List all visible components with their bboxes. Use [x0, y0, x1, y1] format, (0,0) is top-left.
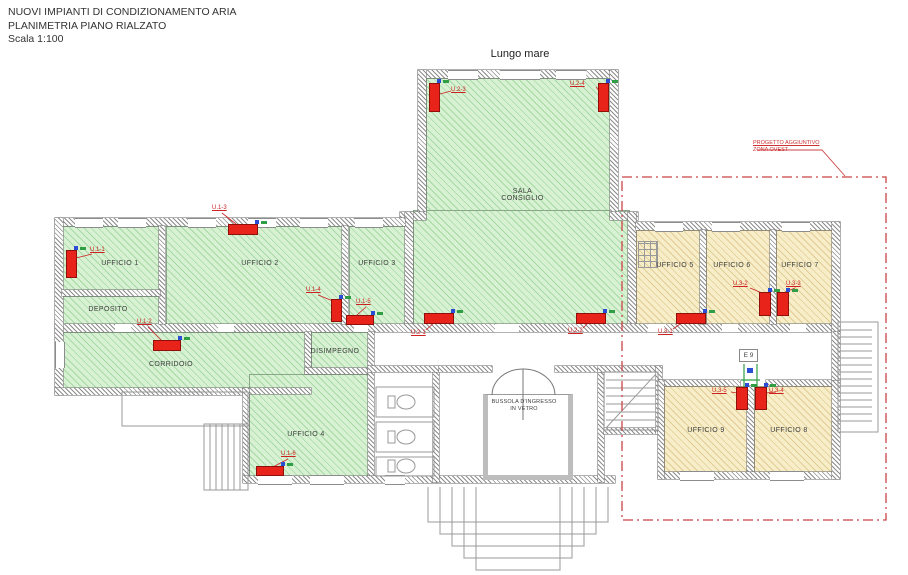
wall-segment [342, 226, 348, 324]
ac-unit-label-u3-2: U.3-2 [733, 281, 748, 287]
window [712, 222, 740, 232]
wall-segment [658, 380, 740, 386]
window [448, 70, 478, 80]
room-label-deposito: DEPOSITO [68, 306, 148, 313]
wall-segment [832, 332, 840, 380]
window [556, 70, 586, 80]
wall-segment [832, 222, 840, 332]
wall-segment [368, 366, 439, 372]
ac-unit-u1-1 [66, 250, 77, 278]
ac-unit-label-u2-3: U.2-3 [451, 87, 466, 93]
wall-segment [439, 366, 492, 372]
piping-node [747, 368, 753, 373]
ac-unit-label-u3-1: U.3-1 [658, 329, 673, 335]
ac-unit-label-u1-6: U.1-6 [281, 451, 296, 457]
room-label-ufficio-9: UFFICIO 9 [666, 427, 746, 434]
window [258, 475, 292, 485]
wall-segment [418, 70, 426, 218]
window [500, 70, 540, 80]
room-label-sala-consiglio: SALA CONSIGLIO [470, 188, 575, 202]
ac-unit-label-u2-1: U.2-1 [411, 330, 426, 336]
wall-segment [832, 380, 840, 479]
ac-unit-label-u1-3: U.1-3 [212, 205, 227, 211]
ac-unit-label-u1-5: U.1-5 [356, 299, 371, 305]
door-opening [722, 324, 738, 332]
door-opening [790, 324, 806, 332]
wall-segment [598, 372, 604, 482]
zone-note-line-1: PROGETTO AGGIUNTIVO [753, 140, 820, 147]
room-label-ufficio-2: UFFICIO 2 [220, 260, 300, 267]
room-label-ufficio-8: UFFICIO 8 [749, 427, 829, 434]
window [75, 218, 103, 228]
wall-segment [55, 388, 249, 395]
ac-unit-u3-3 [777, 292, 789, 316]
ac-unit-u1-3 [228, 224, 258, 235]
door-opening [354, 324, 368, 332]
ac-unit-label-u3-3: U.3-3 [786, 281, 801, 287]
ac-unit-label-u1-2: U.1-2 [137, 319, 152, 325]
room-ufficio-3 [349, 226, 407, 326]
wc-stalls [376, 387, 434, 476]
wall-segment [405, 212, 413, 324]
ac-unit-label-u3-5: U.3-5 [712, 388, 727, 394]
room-ufficio-2 [166, 226, 344, 326]
wall-segment [159, 226, 165, 324]
wall-segment [766, 380, 840, 386]
room-label-ufficio-1: UFFICIO 1 [80, 260, 160, 267]
door-opening [218, 324, 234, 332]
title-line-1: NUOVI IMPIANTI DI CONDIZIONAMENTO ARIA [8, 6, 237, 20]
ac-unit-u3-4 [755, 387, 767, 410]
seafront-label: Lungo mare [460, 48, 580, 60]
wall-segment [243, 388, 249, 482]
window [118, 218, 146, 228]
window [385, 475, 405, 485]
room-ufficio-1 [62, 226, 162, 292]
ac-unit-u2-4 [598, 83, 609, 112]
ac-unit-label-u1-1: U.1-1 [90, 247, 105, 253]
ac-unit-u3-5 [736, 387, 748, 410]
wall-segment [598, 366, 662, 372]
ac-unit-u1-6 [256, 466, 284, 476]
ac-unit-u2-1 [424, 313, 454, 324]
wall-segment [305, 368, 372, 374]
interior-staircase [604, 372, 658, 430]
door-opening [115, 324, 131, 332]
ac-unit-u3-1 [676, 313, 706, 324]
door-tag-e9: E 9 [739, 349, 758, 362]
wall-segment [62, 290, 160, 296]
wall-segment [555, 366, 604, 372]
room-label-ufficio-4: UFFICIO 4 [266, 431, 346, 438]
wall-segment [604, 428, 662, 434]
room-label-bussola: BUSSOLA D'INGRESSO IN VETRO [484, 399, 564, 412]
window [355, 218, 383, 228]
ac-unit-label-u2-2: U.2-2 [568, 328, 583, 334]
window [310, 475, 344, 485]
left-staircase [122, 392, 248, 490]
wall-segment [658, 380, 664, 479]
window [55, 342, 65, 368]
zone-note-line-2: ZONA OVEST [753, 147, 820, 154]
room-label-ufficio-7: UFFICIO 7 [760, 262, 840, 269]
grand-staircase [428, 487, 608, 570]
ac-unit-label-u3-4: U.3-4 [769, 388, 784, 394]
ac-unit-u2-2 [576, 313, 606, 324]
ac-unit-label-u2-4: U.2-4 [570, 81, 585, 87]
wall-segment [243, 388, 311, 394]
floor-plan: NUOVI IMPIANTI DI CONDIZIONAMENTO ARIA P… [0, 0, 908, 575]
ac-unit-u1-2 [153, 340, 181, 351]
window [680, 471, 714, 481]
right-staircase [838, 322, 878, 432]
ac-unit-u1-4 [331, 299, 342, 322]
window [188, 218, 216, 228]
room-label-corridoio: CORRIDOIO [131, 361, 211, 368]
door-opening [495, 324, 519, 332]
room-label-disimpegno: DISIMPEGNO [295, 348, 375, 355]
window [655, 222, 683, 232]
window [782, 222, 810, 232]
room-sala-consiglio-lower [413, 210, 630, 326]
ac-unit-label-u1-4: U.1-4 [306, 287, 321, 293]
room-label-ufficio-3: UFFICIO 3 [337, 260, 417, 267]
title-line-2: PLANIMETRIA PIANO RIALZATO [8, 20, 237, 34]
zone-note: PROGETTO AGGIUNTIVO ZONA OVEST [753, 140, 820, 154]
window [770, 471, 804, 481]
window [300, 218, 328, 228]
wall-segment [610, 70, 618, 218]
ac-unit-u1-5 [346, 315, 374, 325]
wall-segment [55, 218, 63, 395]
wall-segment [433, 372, 439, 482]
title-block: NUOVI IMPIANTI DI CONDIZIONAMENTO ARIA P… [8, 6, 237, 47]
scale-label: Scala 1:100 [8, 33, 237, 47]
ac-unit-u2-3 [429, 83, 440, 112]
ac-unit-u3-2 [759, 292, 771, 316]
